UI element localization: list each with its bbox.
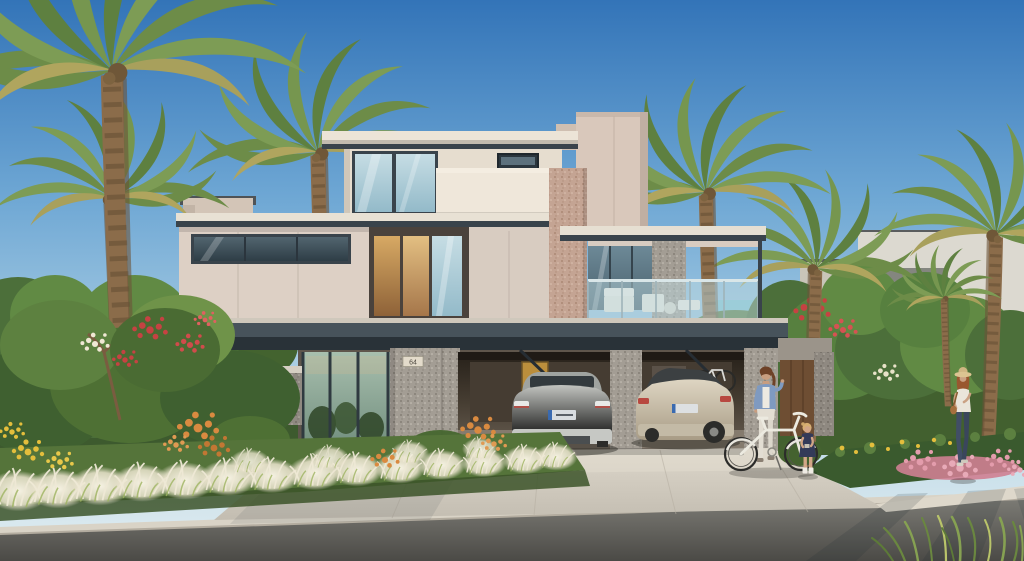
roof-slab [322, 131, 578, 149]
facade-band [196, 318, 788, 350]
third-floor [322, 131, 578, 216]
strip-window [191, 234, 351, 264]
warm-glass-windows [369, 227, 469, 323]
corner-glass-window [352, 151, 438, 215]
architectural-rendering: 64 [0, 0, 1024, 561]
red-flower-bush [110, 308, 220, 392]
license-plate [672, 404, 698, 413]
house-number: 64 [409, 360, 417, 367]
